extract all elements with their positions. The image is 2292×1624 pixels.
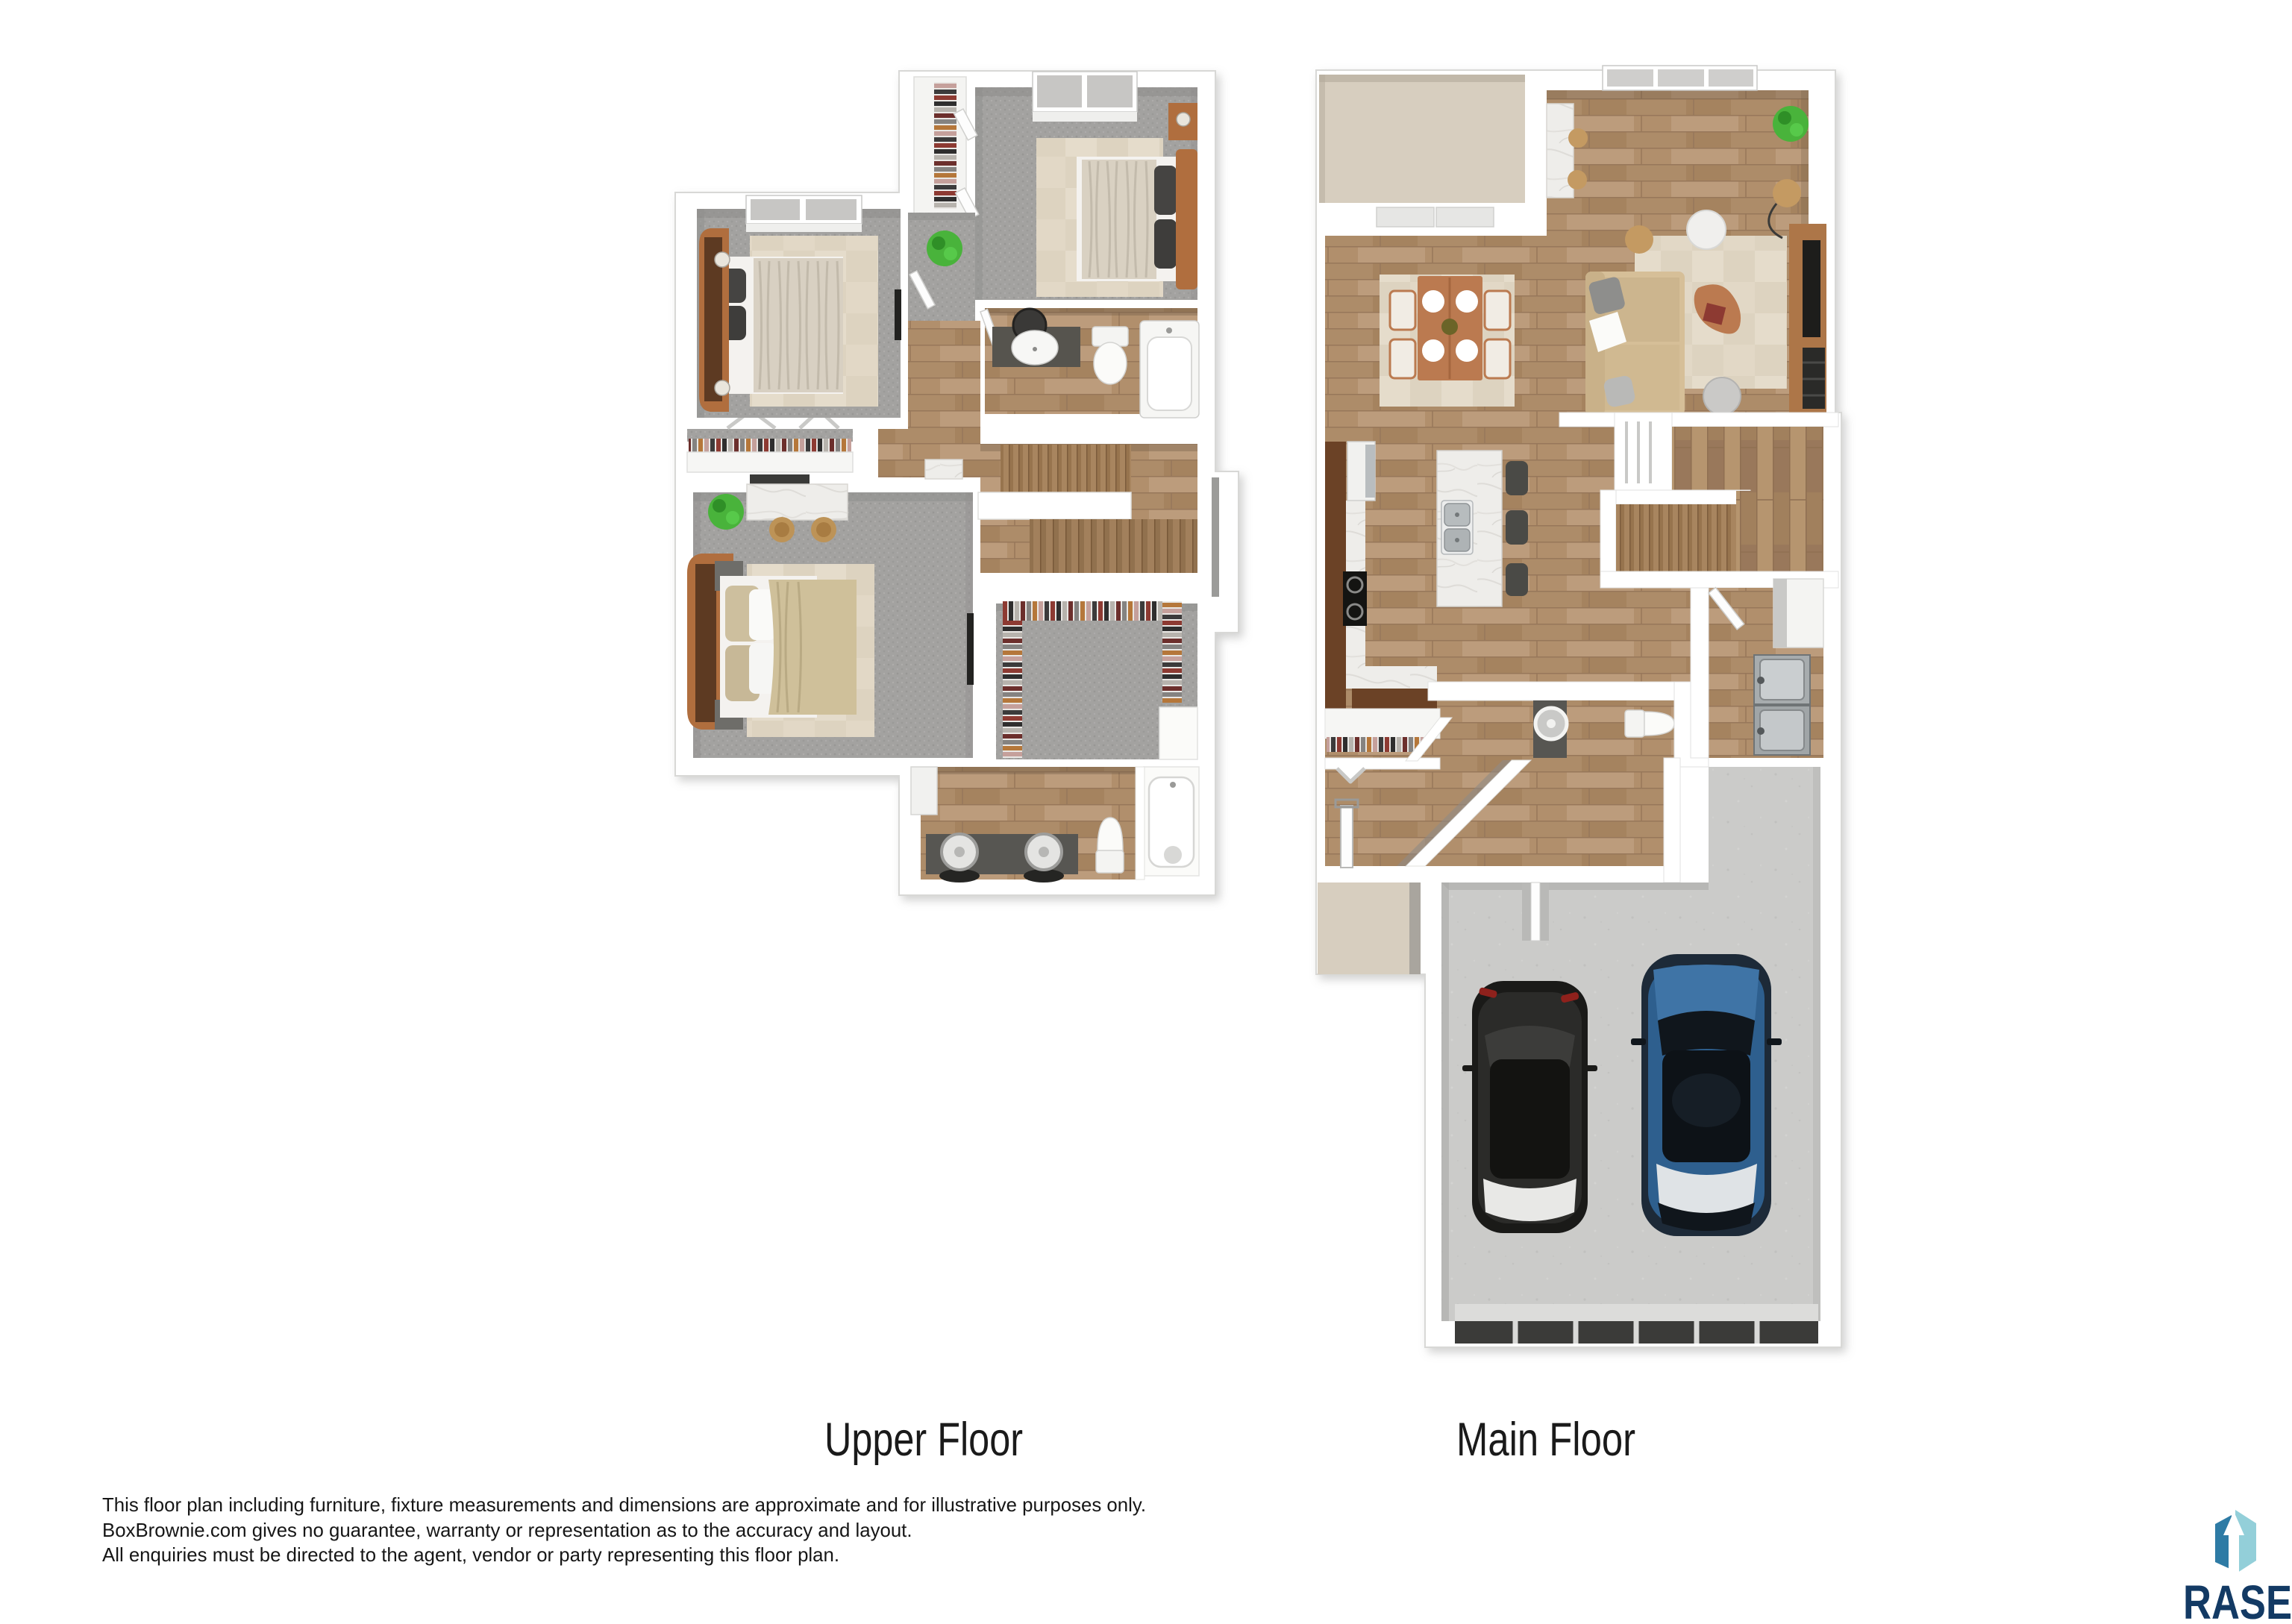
svg-text:RASE: RASE	[2183, 1576, 2292, 1620]
svg-text:Upper Floor: Upper Floor	[824, 1414, 1023, 1466]
svg-text:This floor plan including furn: This floor plan including furniture, fix…	[102, 1495, 1146, 1516]
svg-text:All enquiries must be directed: All enquiries must be directed to the ag…	[102, 1545, 839, 1566]
svg-text:BoxBrownie.com gives no guaran: BoxBrownie.com gives no guarantee, warra…	[102, 1520, 912, 1541]
svg-text:Main Floor: Main Floor	[1456, 1414, 1635, 1466]
